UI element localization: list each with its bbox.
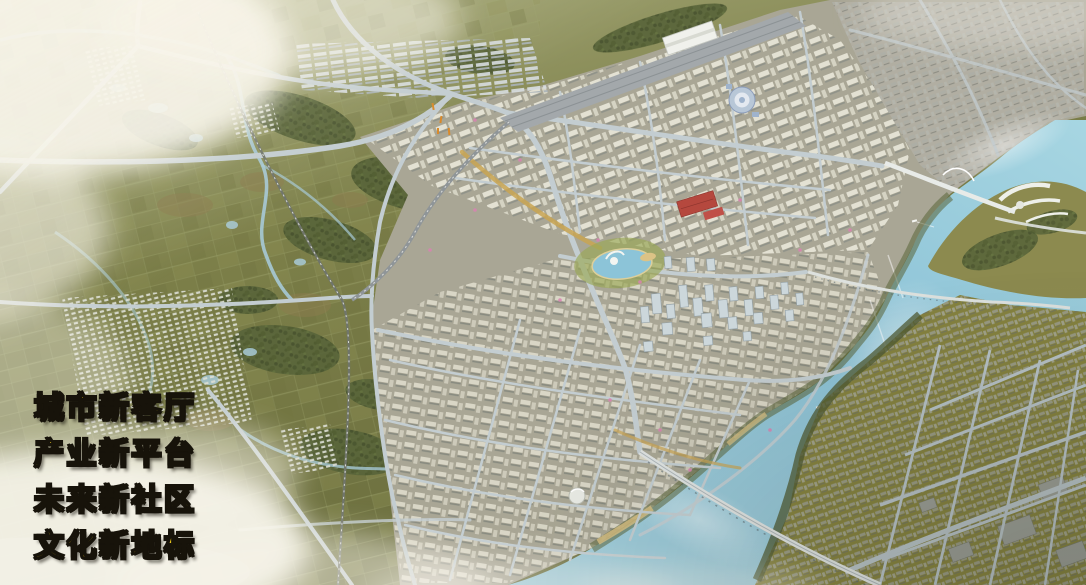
aerial-city-rendering: 城市新客厅 产业新平台 未来新社区 文化新地标: [0, 0, 1086, 585]
slogan-line-1: 城市新客厅: [34, 386, 197, 432]
slogan-line-4: 文化新地标: [34, 524, 197, 570]
slogan-overlay: 城市新客厅 产业新平台 未来新社区 文化新地标: [34, 386, 197, 570]
slogan-line-3: 未来新社区: [34, 478, 197, 524]
slogan-line-2: 产业新平台: [34, 432, 197, 478]
